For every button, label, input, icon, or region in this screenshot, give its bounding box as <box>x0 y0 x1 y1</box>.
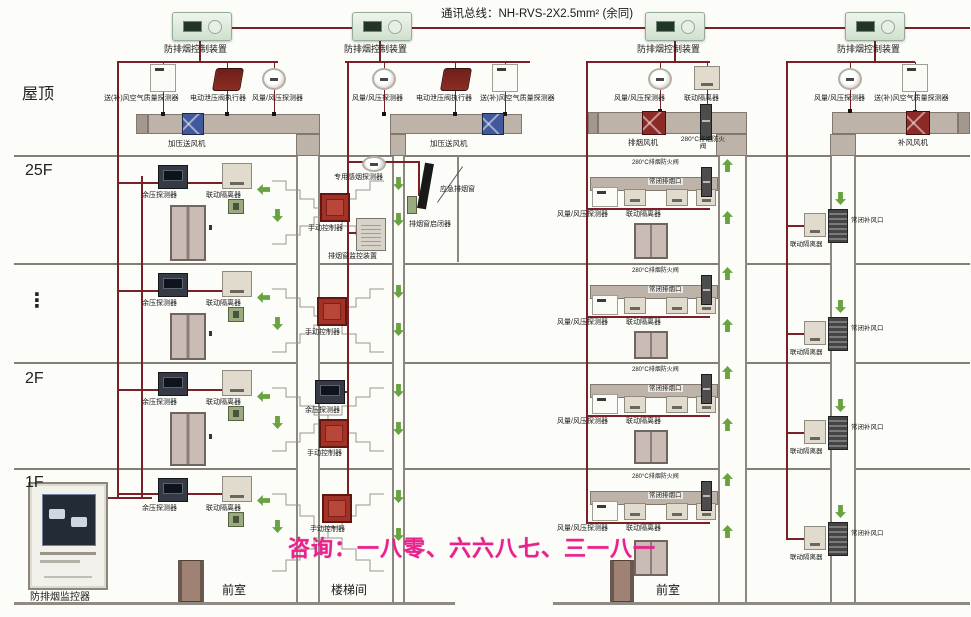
linkage-isolator <box>666 503 688 520</box>
bus-branch <box>586 415 710 417</box>
relief-valve-actuator <box>212 68 244 91</box>
makeup-fan <box>906 111 930 135</box>
duct-elbow <box>830 134 856 156</box>
ground-line <box>553 602 970 605</box>
shaft-wall <box>745 156 747 602</box>
exhaust-duct <box>598 112 747 134</box>
isolator-module <box>228 512 244 527</box>
damper-label: 280°C排烟防火阀 <box>632 367 679 374</box>
device-label: 送(补)风空气质量探测器 <box>104 95 179 103</box>
smoke-control-unit <box>845 12 905 41</box>
flow-pressure-detector <box>592 394 618 414</box>
closed-makeup-vent <box>828 522 848 556</box>
elevator-door <box>170 205 206 261</box>
cabinet-screen <box>42 494 96 546</box>
controller-label: 防排烟控制装置 <box>344 44 407 54</box>
vent-label: 常闭排烟口 <box>648 178 683 185</box>
airflow-arrow-down <box>835 505 846 518</box>
linkage-isolator <box>624 503 646 520</box>
bus-branch <box>586 208 710 210</box>
manual-controller <box>319 419 349 448</box>
device-label: 余压探测器 <box>142 300 177 308</box>
tap-point <box>272 112 276 116</box>
elevator-door <box>634 331 668 359</box>
bus-riser <box>117 61 119 497</box>
airflow-arrow-up <box>722 525 733 538</box>
flow-pressure-detector <box>592 187 618 207</box>
duct-cap <box>588 112 598 134</box>
fire-damper-280 <box>701 275 712 305</box>
device-label: 应急排烟窗 <box>440 186 475 194</box>
linkage-isolator <box>804 526 826 550</box>
elevator-door <box>170 412 206 466</box>
floor-label-25f: 25F <box>25 162 53 180</box>
device-label: 送(补)风空气质量探测器 <box>480 95 555 103</box>
bus-title: 通讯总线：NH-RVS-2X2.5mm² (余同) <box>441 8 633 21</box>
manual-controller <box>320 193 350 222</box>
device-label: 余压探测器 <box>142 399 177 407</box>
bus-branch <box>786 225 804 227</box>
damper-label: 280°C排烟防火阀 <box>632 160 679 167</box>
residual-pressure-detector <box>158 478 188 502</box>
tap-point <box>161 112 165 116</box>
bus-riser <box>586 61 588 523</box>
fire-damper-280 <box>701 374 712 404</box>
room-label-stairwell: 楼梯间 <box>331 584 367 598</box>
call-button <box>209 434 212 439</box>
vent-opener <box>407 196 417 214</box>
flow-pressure-detector <box>592 295 618 315</box>
device-label: 排烟窗监控装置 <box>328 253 377 261</box>
duct-cap <box>958 112 970 134</box>
duct-elbow <box>296 134 320 156</box>
dedicated-smoke-detector <box>362 156 386 172</box>
device-label: 电动泄压阀执行器 <box>190 95 246 103</box>
bus-branch <box>586 316 710 318</box>
airflow-arrow-up <box>722 418 733 431</box>
duct-elbow <box>390 134 406 156</box>
screen-glow <box>71 517 87 527</box>
air-quality-detector <box>492 64 518 92</box>
floor-line <box>854 155 970 157</box>
flow-pressure-detector <box>592 501 618 521</box>
device-label: 风量/风压探测器 <box>557 319 608 327</box>
room-label-anteroom: 前室 <box>222 584 246 598</box>
anteroom-door <box>610 560 634 602</box>
linkage-isolator <box>666 396 688 413</box>
smoke-control-unit <box>645 12 705 41</box>
device-label: 风量/风压探测器 <box>814 95 865 103</box>
device-label: 专用感烟探测器 <box>334 174 383 182</box>
device-label: 电动泄压阀执行器 <box>416 95 472 103</box>
vent-label: 常闭排烟口 <box>648 385 683 392</box>
cabinet-detail <box>40 560 80 563</box>
elevator-door <box>634 430 668 464</box>
device-label: 联动隔离器 <box>684 95 719 103</box>
floor-line <box>854 468 970 470</box>
device-label: 手动控制器 <box>308 225 343 233</box>
duct-cap <box>136 114 148 134</box>
device-label: 送(补)风空气质量探测器 <box>874 95 949 103</box>
floor-label-1f: 1F <box>25 474 44 492</box>
closed-makeup-vent <box>828 416 848 450</box>
bus-branch <box>786 538 804 540</box>
floor-label-2f: 2F <box>25 370 44 388</box>
linkage-isolator <box>694 66 720 90</box>
airflow-arrow-down <box>835 192 846 205</box>
bus-branch <box>786 333 804 335</box>
pressurization-fan <box>182 113 204 135</box>
linkage-isolator <box>222 370 252 396</box>
linkage-isolator <box>624 396 646 413</box>
residual-pressure-detector <box>158 273 188 297</box>
fan-label: 排烟风机 <box>628 139 658 148</box>
flow-pressure-detector <box>262 68 286 90</box>
smoke-control-unit <box>352 12 412 41</box>
bus-connector <box>117 61 278 63</box>
floor-line <box>14 263 296 265</box>
device-label: 联动隔离器 <box>206 505 241 513</box>
cabinet-detail <box>44 576 92 578</box>
makeup-duct <box>832 112 958 134</box>
airflow-arrow-down <box>835 399 846 412</box>
elevator-door <box>170 313 206 360</box>
flow-pressure-detector <box>838 68 862 90</box>
isolator-module <box>228 199 244 214</box>
fan-label: 加压送风机 <box>430 140 468 149</box>
controller-label: 防排烟控制装置 <box>164 44 227 54</box>
floor-line <box>14 468 296 470</box>
device-label: 手动控制器 <box>307 450 342 458</box>
floor-line <box>403 263 718 265</box>
shaft-wall <box>718 156 720 602</box>
bus-connector <box>586 61 710 63</box>
smoke-monitor-cabinet <box>28 482 108 590</box>
damper-label: 280°C排烟防火阀 <box>632 474 679 481</box>
device-label: 风量/风压探测器 <box>557 418 608 426</box>
controller-label: 防排烟控制装置 <box>637 44 700 54</box>
residual-pressure-detector <box>158 372 188 396</box>
controller-label: 防排烟控制装置 <box>837 44 900 54</box>
device-label: 联动隔离器 <box>626 319 661 327</box>
device-label: 联动隔离器 <box>790 448 823 455</box>
linkage-isolator <box>222 271 252 297</box>
linkage-isolator <box>222 476 252 502</box>
air-quality-detector <box>150 64 176 92</box>
bus-branch <box>586 522 710 524</box>
tap-point <box>453 112 457 116</box>
vent-monitor-unit <box>356 218 386 251</box>
bus-branch <box>786 432 804 434</box>
device-label: 联动隔离器 <box>790 554 823 561</box>
manual-controller <box>322 494 352 523</box>
floor-line <box>403 155 718 157</box>
device-label: 手动控制器 <box>305 329 340 337</box>
linkage-isolator <box>804 213 826 237</box>
floor-line <box>854 362 970 364</box>
vent-label: 常闭排烟口 <box>648 492 683 499</box>
fire-damper-280 <box>700 104 712 140</box>
floor-line <box>854 263 970 265</box>
damper-label: 280°C排烟防火阀 <box>632 268 679 275</box>
exhaust-fan <box>642 111 666 135</box>
fan-label: 加压送风机 <box>168 140 206 149</box>
device-label: 风量/风压探测器 <box>557 211 608 219</box>
screen-glow <box>49 509 65 519</box>
fan-label: 补风风机 <box>898 139 928 148</box>
device-label: 联动隔离器 <box>790 349 823 356</box>
floor-line <box>14 362 296 364</box>
cabinet-label: 防排烟监控器 <box>30 592 90 604</box>
bus-riser <box>141 176 143 497</box>
airflow-arrow-up <box>722 159 733 172</box>
bus-riser <box>786 61 788 540</box>
residual-pressure-detector <box>158 165 188 189</box>
call-button <box>209 225 212 230</box>
air-quality-detector <box>902 64 928 92</box>
call-button <box>209 331 212 336</box>
residual-pressure-detector <box>315 380 345 404</box>
device-label: 余压探测器 <box>142 192 177 200</box>
vent-label: 常闭补风口 <box>851 325 884 332</box>
airflow-arrow-up <box>722 211 733 224</box>
bus-connector <box>345 61 530 63</box>
airflow-arrow-up <box>722 267 733 280</box>
room-label-anteroom: 前室 <box>656 584 680 598</box>
smoke-control-unit <box>172 12 232 41</box>
airflow-arrow-down <box>835 300 846 313</box>
cabinet-detail <box>40 552 96 555</box>
floor-line <box>14 155 296 157</box>
device-label: 联动隔离器 <box>790 241 823 248</box>
diagram-canvas: 通讯总线：NH-RVS-2X2.5mm² (余同) 防排烟控制装置 防排烟控制装… <box>0 0 971 617</box>
relief-valve-actuator <box>440 68 472 91</box>
flow-pressure-detector <box>648 68 672 90</box>
vent-label: 常闭补风口 <box>851 530 884 537</box>
tap-point <box>225 112 229 116</box>
device-label: 联动隔离器 <box>626 418 661 426</box>
closed-makeup-vent <box>828 317 848 351</box>
airflow-arrow-up <box>722 319 733 332</box>
damper-label: 280°C排烟防火阀 <box>678 136 728 151</box>
linkage-isolator <box>624 189 646 206</box>
tap-point <box>848 109 852 113</box>
vent-pane-line <box>437 166 463 203</box>
floor-label-roof: 屋顶 <box>22 80 54 104</box>
anteroom-door <box>178 560 204 602</box>
isolator-module <box>228 307 244 322</box>
device-label: 风量/风压探测器 <box>252 95 303 103</box>
vent-label: 常闭补风口 <box>851 217 884 224</box>
manual-controller <box>317 297 347 326</box>
device-label: 余压探测器 <box>142 505 177 513</box>
linkage-isolator <box>804 321 826 345</box>
vent-label: 常闭排烟口 <box>648 286 683 293</box>
airflow-arrow-up <box>722 473 733 486</box>
elevator-door <box>634 223 668 259</box>
fire-damper-280 <box>701 167 712 197</box>
linkage-isolator <box>666 297 688 314</box>
device-label: 联动隔离器 <box>206 399 241 407</box>
device-label: 联动隔离器 <box>206 192 241 200</box>
airflow-arrow-up <box>722 366 733 379</box>
watermark-text: 咨询：一八零、六六八七、三一八一 <box>288 531 656 563</box>
fire-damper-280 <box>701 481 712 511</box>
device-label: 联动隔离器 <box>626 211 661 219</box>
tap-point <box>382 112 386 116</box>
floor-line <box>403 362 718 364</box>
isolator-module <box>228 406 244 421</box>
floor-line <box>403 468 718 470</box>
linkage-isolator <box>624 297 646 314</box>
supply-duct <box>148 114 320 134</box>
flow-pressure-detector <box>372 68 396 90</box>
pressurization-fan <box>482 113 504 135</box>
device-label: 风量/风压探测器 <box>352 95 403 103</box>
device-label: 风量/风压探测器 <box>614 95 665 103</box>
linkage-isolator <box>222 163 252 189</box>
linkage-isolator <box>666 189 688 206</box>
closed-makeup-vent <box>828 209 848 243</box>
vent-label: 常闭补风口 <box>851 424 884 431</box>
linkage-isolator <box>804 420 826 444</box>
device-label: 排烟窗启闭器 <box>409 221 451 229</box>
floor-ellipsis: ⋮ <box>27 288 47 313</box>
device-label: 联动隔离器 <box>206 300 241 308</box>
device-label: 余压探测器 <box>305 407 340 415</box>
